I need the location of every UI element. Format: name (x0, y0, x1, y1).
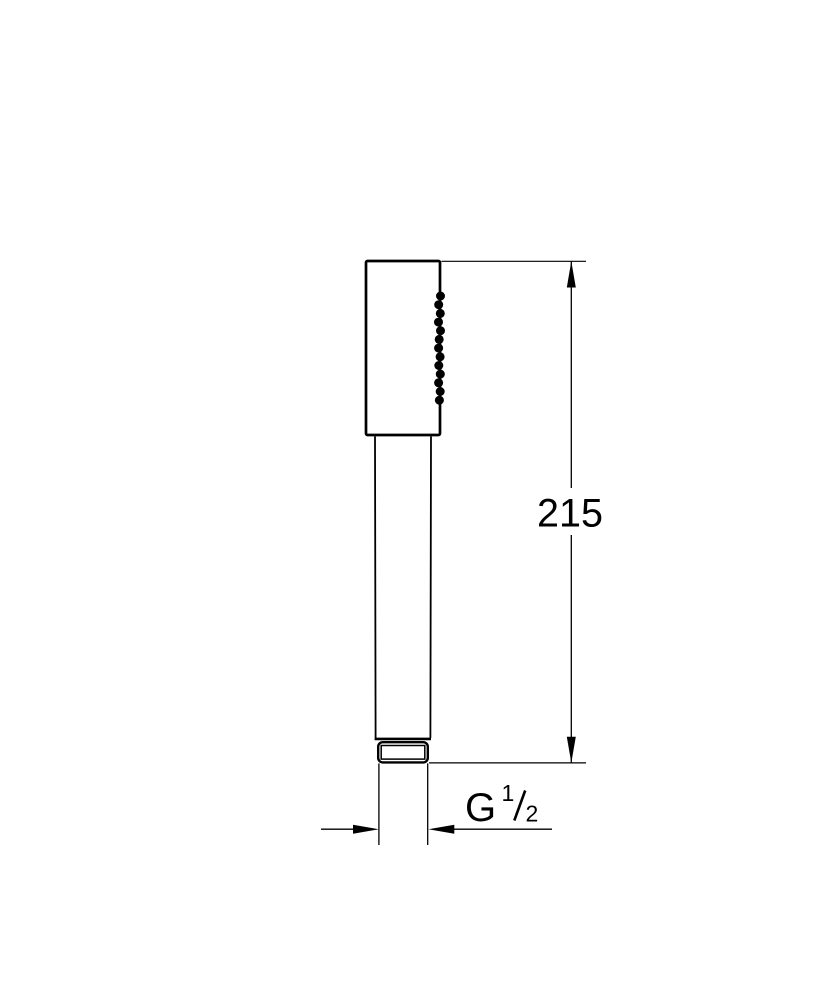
svg-text:2: 2 (526, 801, 539, 827)
svg-text:1: 1 (502, 780, 515, 806)
svg-text:G: G (465, 786, 496, 830)
svg-text:215: 215 (537, 492, 603, 536)
